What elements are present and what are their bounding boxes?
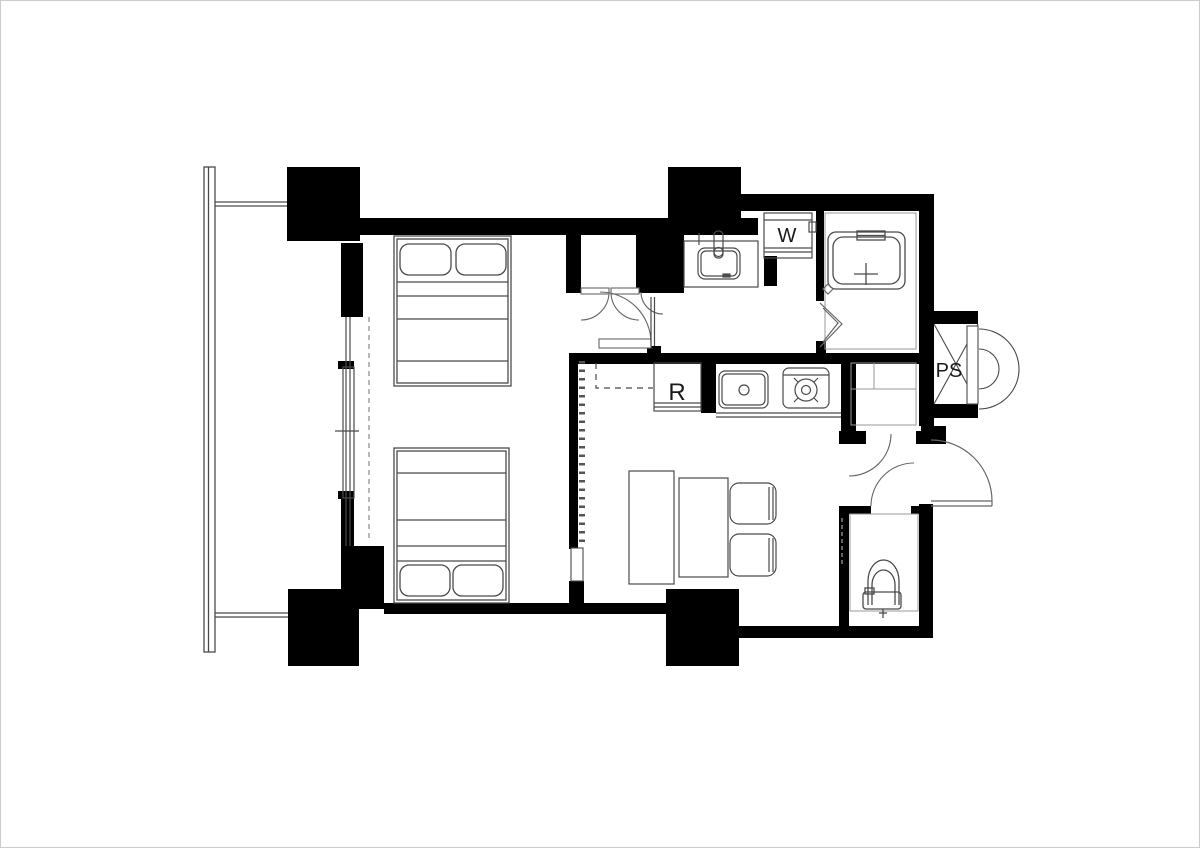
meter-door-arc	[979, 369, 1019, 409]
wall-toilet-left	[839, 506, 849, 638]
bedroom-door-leaf	[599, 339, 651, 348]
window-sliding-panel	[343, 367, 354, 498]
wall-bottom-right	[739, 626, 933, 638]
faucet-handle-icon	[714, 248, 723, 257]
pillow	[456, 244, 506, 275]
kitchen-sink	[719, 371, 768, 408]
kitchen-sink-inner	[722, 374, 765, 405]
balcony-railing	[204, 167, 215, 652]
entrance-door	[931, 440, 992, 506]
toilet	[863, 560, 901, 618]
entrance-door-arc	[931, 440, 992, 501]
hall-doors	[849, 434, 914, 506]
wall-toilet-top-right	[911, 506, 919, 514]
door-swing-arc	[581, 292, 609, 320]
washroom-outline	[851, 363, 916, 425]
burner-icon	[795, 379, 817, 401]
meter-door-arc	[979, 349, 999, 369]
sink-drain	[739, 385, 749, 395]
pipe-space-wall-bottom	[929, 404, 978, 418]
basin-inner	[701, 251, 737, 276]
meter-box-panel	[967, 326, 978, 404]
wall-top-a	[360, 218, 758, 235]
drain	[723, 274, 730, 277]
wall-left-upper	[341, 243, 363, 317]
meter-door-arc	[979, 329, 1019, 369]
washing-machine: W	[764, 213, 816, 258]
bath-divider-upper	[816, 211, 824, 301]
meter-door-arc	[979, 369, 999, 389]
wall-bottom-left	[384, 603, 666, 614]
wall-kitchen-north	[569, 353, 934, 364]
closet-wall-right	[636, 229, 684, 293]
wall-top-b	[741, 194, 934, 211]
wall-right-upper	[919, 194, 934, 426]
wall-left-step	[341, 546, 384, 609]
folding-door	[820, 303, 842, 347]
living-dining	[629, 471, 776, 584]
pillow	[400, 565, 450, 596]
toilet-door-arc	[871, 463, 914, 506]
pipe-space-label: PS	[936, 360, 963, 382]
washer-niche-wall	[764, 256, 777, 286]
washbasin	[684, 231, 758, 287]
pillow	[400, 244, 451, 275]
dining-table	[679, 478, 728, 577]
corridor-partition	[651, 297, 655, 346]
pillar-top-left	[287, 167, 360, 241]
toilet-room-outline	[850, 514, 918, 611]
bed-frame	[394, 448, 509, 603]
wall-hall-top-left	[839, 431, 866, 444]
basin	[698, 248, 740, 279]
counter-table	[629, 471, 674, 584]
bed-frame	[394, 236, 511, 386]
closet-door-leaf	[581, 288, 609, 294]
wall-left-lower	[341, 498, 354, 548]
floor-plan: W R	[1, 1, 1200, 848]
kitchen: R	[654, 363, 841, 417]
wall-right-toilet	[919, 504, 933, 638]
closet-door-leaf	[611, 288, 639, 294]
wall-kitchen-right	[841, 353, 856, 431]
wall-hall-top-right	[916, 431, 934, 444]
bed-2	[394, 448, 509, 603]
wall-toilet-top-left	[849, 506, 871, 514]
toilet-room	[850, 514, 918, 611]
pipe-space-wall-top	[929, 311, 978, 324]
sliding-door-panel	[571, 548, 583, 581]
door-swing-arc	[641, 292, 663, 314]
balcony	[204, 167, 288, 652]
pillar-top-center	[668, 167, 741, 219]
pillow	[453, 565, 503, 596]
burner-tick	[794, 398, 798, 402]
washing-machine-label: W	[778, 225, 797, 247]
upper-cabinet-outline	[596, 363, 653, 388]
pipe-space: PS	[934, 324, 1019, 409]
burner-icon-inner	[802, 386, 811, 395]
fridge-niche-wall	[701, 353, 716, 413]
washroom-area	[851, 363, 916, 425]
partition-door-panel	[571, 548, 583, 581]
partition-wall	[569, 353, 578, 549]
faucet-icon	[714, 231, 723, 258]
bed-1	[394, 236, 511, 386]
closet-wall-left	[566, 229, 581, 293]
bathtub	[828, 231, 905, 289]
partition-wall-cap	[569, 581, 584, 614]
toilet-seat	[872, 570, 895, 605]
burner-tick	[814, 378, 818, 382]
kitchen-cabinet-dashed	[596, 363, 653, 388]
burner-tick	[794, 378, 798, 382]
pillar-bottom-center	[666, 589, 739, 666]
floor-plan-page: W R	[0, 0, 1200, 848]
stove	[783, 368, 829, 408]
burner-tick	[814, 398, 818, 402]
refrigerator-label: R	[668, 379, 685, 406]
